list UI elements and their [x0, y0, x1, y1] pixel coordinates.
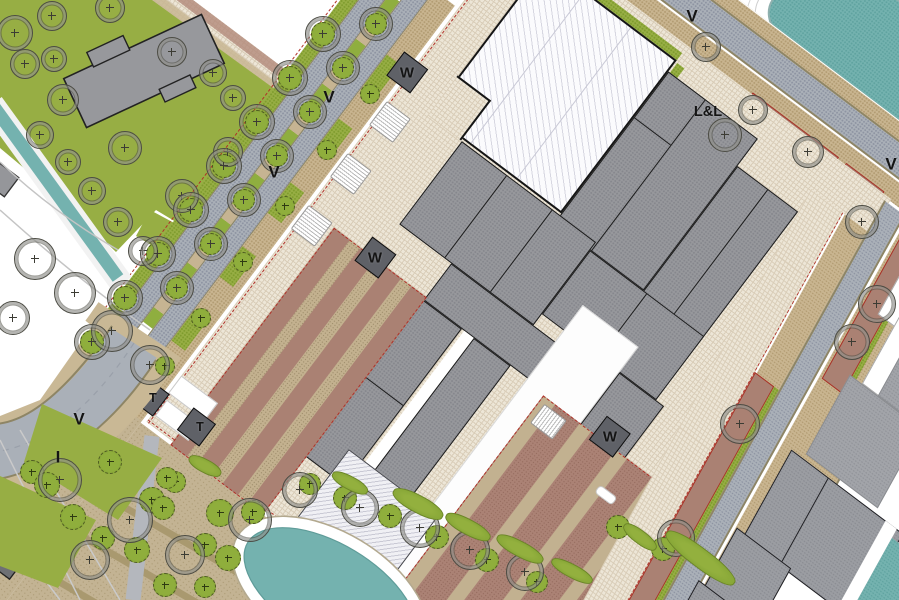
loading-zone-label: L&L [694, 105, 722, 120]
street-label: V [885, 156, 896, 173]
utility-label: T [149, 392, 157, 405]
street-label: V [686, 8, 697, 25]
street-label: V [268, 164, 279, 181]
utility-label: W [368, 251, 382, 266]
site-plan-map: V V V V V I W W W L&L T T [0, 0, 899, 600]
utility-label: W [603, 430, 617, 445]
utility-label: W [400, 66, 414, 81]
street-label: V [323, 89, 334, 106]
label-layer: V V V V V I W W W L&L T T [0, 0, 899, 600]
utility-label: T [196, 421, 204, 434]
access-label: I [56, 449, 61, 466]
street-label: V [73, 411, 84, 428]
